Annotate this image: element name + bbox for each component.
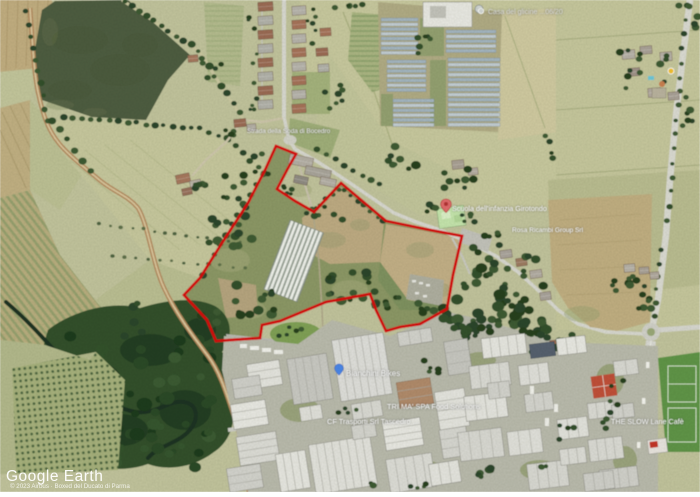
- svg-text:© 2023 Airbus · Boxed del Duca: © 2023 Airbus · Boxed del Ducato di Parm…: [10, 483, 130, 490]
